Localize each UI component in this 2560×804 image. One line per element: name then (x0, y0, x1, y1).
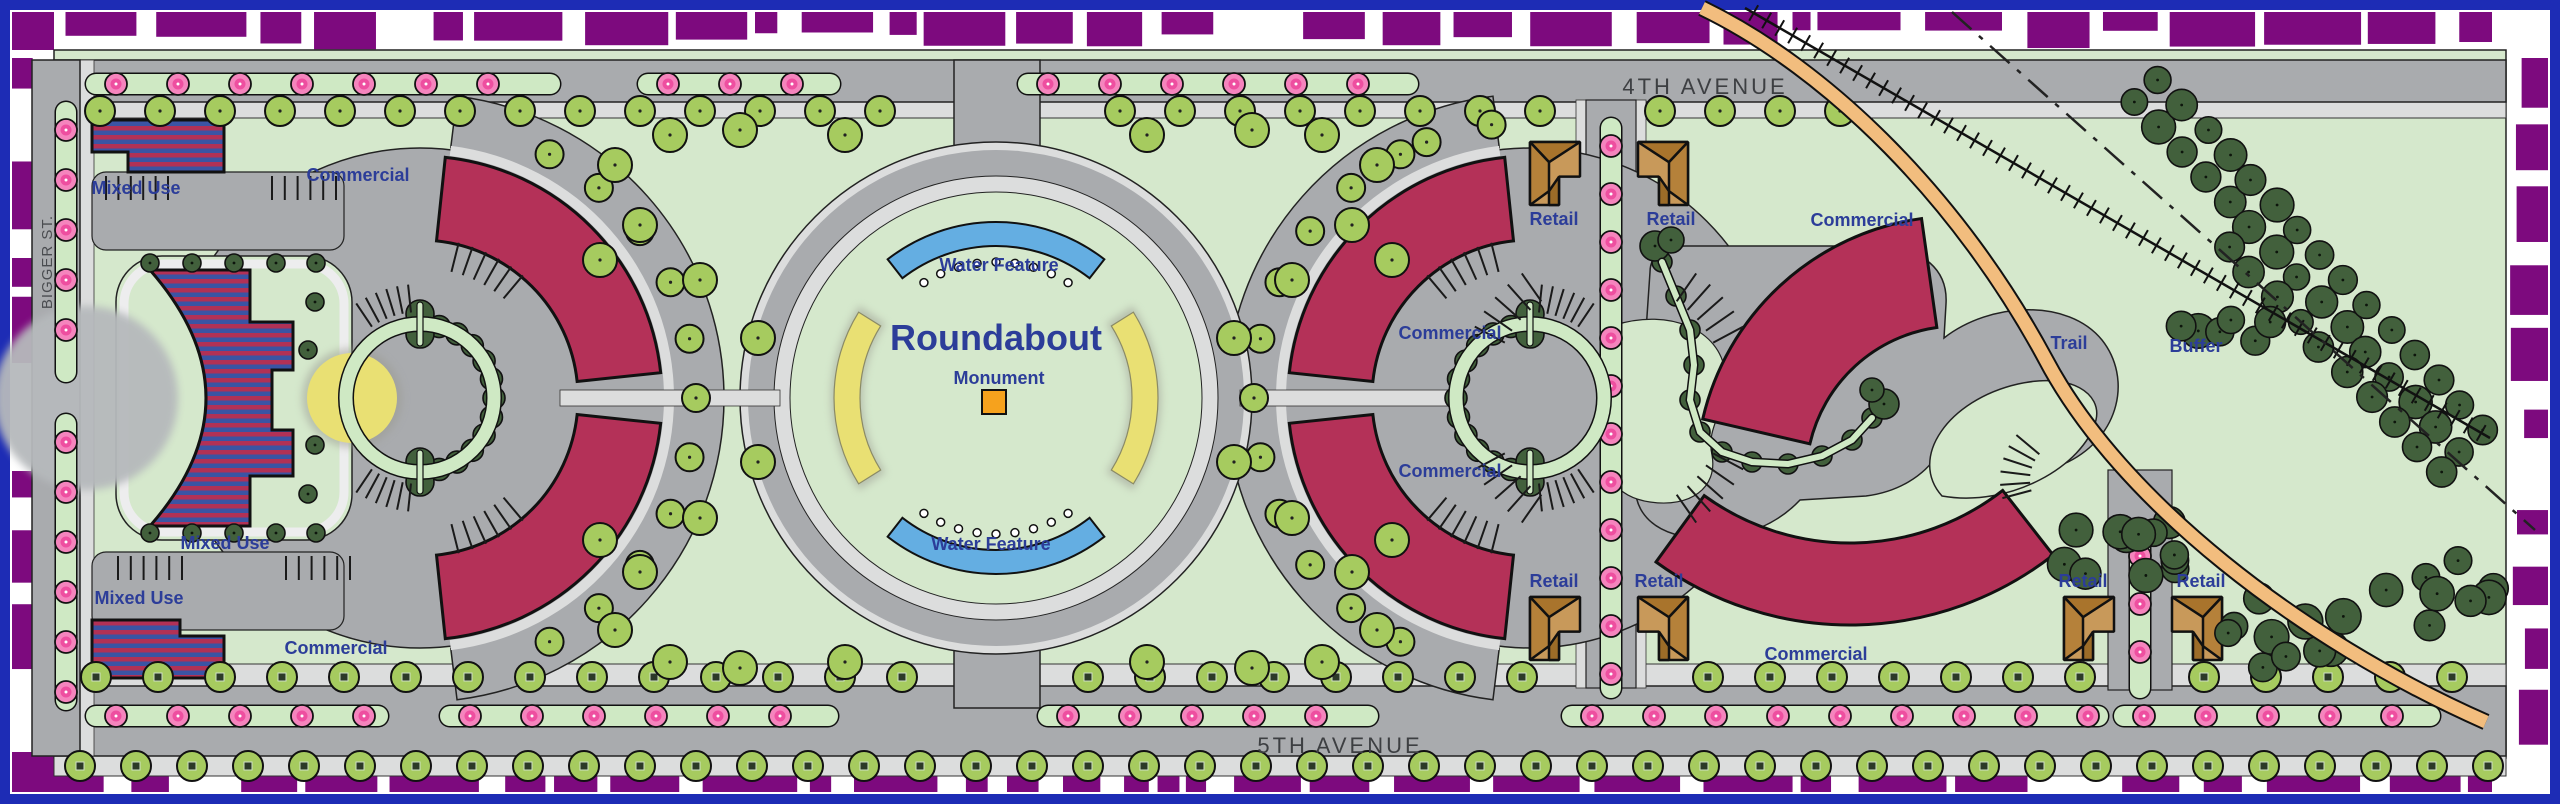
tree-center (65, 129, 68, 132)
tree-center (2457, 559, 2460, 562)
tree-center (1610, 433, 1613, 436)
tree-grate-icon (1308, 762, 1316, 770)
tree-center (425, 83, 428, 86)
tree-grate-icon (692, 762, 700, 770)
tree-center (668, 133, 671, 136)
tree-center (2248, 226, 2251, 229)
tree-grate-icon (1890, 673, 1898, 681)
site-plan-drawing: 4TH AVENUE 5TH AVENUE BIGGER ST. Roundab… (0, 0, 2560, 804)
tree-center (2254, 339, 2257, 342)
tree-center (2346, 371, 2349, 374)
tree-center (1118, 109, 1121, 112)
tree-grate-icon (712, 673, 720, 681)
tree-center (1320, 133, 1323, 136)
tree-center (878, 109, 881, 112)
tree-center (2173, 554, 2176, 557)
tree-center (2329, 715, 2332, 718)
tree-center (1350, 607, 1353, 610)
tree-center (1067, 715, 1070, 718)
tree-center (1259, 337, 1262, 340)
retail-label: Retail (1529, 571, 1578, 591)
border-block (1530, 12, 1612, 46)
border-block (890, 12, 917, 35)
tree-center (239, 83, 242, 86)
tree-center (315, 532, 318, 535)
tree-center (65, 329, 68, 332)
tree-center (1478, 109, 1481, 112)
tree-center (2139, 651, 2142, 654)
tree-center (597, 607, 600, 610)
tree-grate-icon (2324, 673, 2332, 681)
tree-grate-icon (300, 762, 308, 770)
tree-grate-icon (2036, 762, 2044, 770)
tree-center (698, 278, 701, 281)
tree-center (1250, 128, 1253, 131)
tree-center (2229, 319, 2232, 322)
tree-center (669, 512, 672, 515)
border-block (156, 12, 246, 37)
tree-grate-icon (132, 762, 140, 770)
tree-grate-icon (76, 762, 84, 770)
tree-center (2364, 351, 2367, 354)
tree-grate-icon (1868, 762, 1876, 770)
tree-center (1350, 570, 1353, 573)
tree-center (2413, 354, 2416, 357)
tree-center (191, 262, 194, 265)
tree-center (1610, 193, 1613, 196)
border-block (1383, 12, 1441, 45)
tree-center (2390, 329, 2393, 332)
tree-center (2075, 529, 2078, 532)
tree-center (2416, 446, 2419, 449)
tree-grate-icon (2316, 762, 2324, 770)
bigger-street-label: BIGGER ST. (39, 215, 56, 309)
border-block (314, 12, 376, 49)
tree-center (613, 163, 616, 166)
site-plan-page: 4TH AVENUE 5TH AVENUE BIGGER ST. Roundab… (0, 0, 2560, 804)
border-block (2511, 328, 2548, 381)
mixed-use-label: Mixed Use (180, 533, 269, 553)
tree-grate-icon (898, 673, 906, 681)
tree-center (669, 281, 672, 284)
tree-grate-icon (804, 762, 812, 770)
tree-grate-icon (580, 762, 588, 770)
tree-center (593, 715, 596, 718)
tree-center (363, 83, 366, 86)
tree-grate-icon (1028, 762, 1036, 770)
tree-center (2267, 715, 2270, 718)
border-block (676, 12, 747, 40)
tree-center (2438, 379, 2441, 382)
tree-center (1171, 83, 1174, 86)
tree-grate-icon (2372, 762, 2380, 770)
border-block (2103, 12, 2158, 31)
tree-center (729, 83, 732, 86)
tree-grate-icon (1766, 673, 1774, 681)
tree-center (638, 223, 641, 226)
tree-center (738, 128, 741, 131)
tree-center (1290, 278, 1293, 281)
court-bench (417, 450, 423, 494)
tree-center (2261, 666, 2264, 669)
tree-center (2346, 326, 2349, 329)
tree-center (1259, 456, 1262, 459)
tree-grate-icon (2204, 762, 2212, 770)
border-block (2510, 265, 2548, 315)
tree-grate-icon (468, 762, 476, 770)
tree-center (2318, 254, 2321, 257)
tree-center (1538, 109, 1541, 112)
tree-center (1610, 529, 1613, 532)
border-block (2525, 628, 2548, 668)
border-block (755, 12, 777, 33)
tree-center (2157, 126, 2160, 129)
tree-center (2180, 325, 2183, 328)
tree-grate-icon (1700, 762, 1708, 770)
tree-center (1399, 153, 1402, 156)
tree-center (218, 109, 221, 112)
tree-center (177, 715, 180, 718)
tree-grate-icon (412, 762, 420, 770)
border-block (66, 12, 137, 36)
tree-center (2425, 576, 2428, 579)
tree-center (1610, 241, 1613, 244)
tree-center (2228, 246, 2231, 249)
tree-grate-icon (464, 673, 472, 681)
tree-center (398, 109, 401, 112)
tree-center (2487, 596, 2490, 599)
border-block (2368, 12, 2436, 44)
monument-marker (982, 390, 1006, 414)
water-feature-label-south: Water Feature (931, 534, 1050, 554)
tree-grate-icon (774, 673, 782, 681)
tree-center (2276, 296, 2279, 299)
tree-center (2218, 330, 2221, 333)
commercial-label: Commercial (306, 165, 409, 185)
tree-center (2087, 715, 2090, 718)
tree-center (1610, 673, 1613, 676)
tree-center (1232, 460, 1235, 463)
tree-center (1777, 715, 1780, 718)
tree-center (1375, 628, 1378, 631)
border-block (2524, 410, 2548, 438)
fountain-jet-icon (1047, 518, 1055, 526)
tree-grate-icon (860, 762, 868, 770)
tree-center (1233, 83, 1236, 86)
tree-center (239, 715, 242, 718)
tree-center (278, 109, 281, 112)
tree-grate-icon (340, 673, 348, 681)
tree-center (843, 133, 846, 136)
tree-grate-icon (1196, 762, 1204, 770)
tree-grate-icon (2428, 762, 2436, 770)
tree-grate-icon (1394, 673, 1402, 681)
tree-center (307, 349, 310, 352)
tree-grate-icon (1084, 673, 1092, 681)
tree-center (548, 640, 551, 643)
tree-center (738, 666, 741, 669)
tree-center (1191, 715, 1194, 718)
tree-grate-icon (2076, 673, 2084, 681)
tree-center (1129, 715, 1132, 718)
buffer-label: Buffer (2170, 336, 2223, 356)
tree-center (65, 441, 68, 444)
tree-center (1350, 186, 1353, 189)
tree-center (698, 516, 701, 519)
tree-center (2227, 632, 2230, 635)
tree-center (1610, 289, 1613, 292)
tree-center (638, 109, 641, 112)
tree-center (1591, 715, 1594, 718)
court-bench (417, 302, 423, 346)
border-block (1087, 12, 1142, 46)
tree-center (2137, 533, 2140, 536)
tree-center (688, 337, 691, 340)
tree-center (1109, 83, 1112, 86)
tree-center (149, 532, 152, 535)
tree-center (2207, 129, 2210, 132)
tree-center (1839, 715, 1842, 718)
tree-center (2428, 624, 2431, 627)
water-feature-label-north: Water Feature (939, 255, 1058, 275)
tree-center (2025, 715, 2028, 718)
tree-center (233, 262, 236, 265)
tree-center (2144, 574, 2147, 577)
tree-grate-icon (2484, 762, 2492, 770)
tree-grate-icon (1208, 673, 1216, 681)
tree-center (2341, 279, 2344, 282)
tree-center (2393, 421, 2396, 424)
border-block (12, 58, 33, 89)
tree-center (843, 660, 846, 663)
tree-grate-icon (1084, 762, 1092, 770)
tree-grate-icon (1364, 762, 1372, 770)
tree-center (1295, 83, 1298, 86)
tree-center (2414, 401, 2417, 404)
tree-grate-icon (916, 762, 924, 770)
tree-grate-icon (524, 762, 532, 770)
tree-center (338, 109, 341, 112)
fountain-jet-icon (920, 509, 928, 517)
tree-center (2296, 229, 2299, 232)
tree-center (301, 83, 304, 86)
tree-center (1901, 715, 1904, 718)
mixed-use-label: Mixed Use (94, 588, 183, 608)
border-block (924, 12, 1006, 46)
border-block (1454, 12, 1512, 37)
tree-center (2229, 154, 2232, 157)
tree-grate-icon (154, 673, 162, 681)
tree-center (2229, 201, 2232, 204)
tree-center (2317, 346, 2320, 349)
retail-label: Retail (1529, 209, 1578, 229)
tree-center (2063, 563, 2066, 566)
tree-grate-icon (1812, 762, 1820, 770)
tree-center (115, 715, 118, 718)
tree-center (307, 493, 310, 496)
border-block (2516, 124, 2548, 170)
tree-center (818, 109, 821, 112)
tree-center (2320, 301, 2323, 304)
tree-center (717, 715, 720, 718)
tree-center (1375, 163, 1378, 166)
tree-grate-icon (636, 762, 644, 770)
tree-center (98, 109, 101, 112)
tree-center (531, 715, 534, 718)
tree-center (149, 262, 152, 265)
tree-center (1145, 133, 1148, 136)
tree-center (1250, 666, 1253, 669)
border-block (434, 12, 463, 40)
border-block (474, 12, 562, 41)
tree-center (1298, 109, 1301, 112)
tree-center (694, 396, 697, 399)
tree-center (1253, 715, 1256, 718)
tree-center (458, 109, 461, 112)
tree-center (2197, 330, 2200, 333)
border-block (802, 12, 873, 32)
tree-grate-icon (2448, 673, 2456, 681)
tree-grate-icon (356, 762, 364, 770)
tree-grate-icon (1420, 762, 1428, 770)
tree-center (2269, 321, 2272, 324)
tree-center (1871, 389, 1874, 392)
tree-center (1320, 660, 1323, 663)
border-block (2170, 12, 2255, 47)
tree-center (698, 109, 701, 112)
tree-center (2249, 179, 2252, 182)
tree-grate-icon (526, 673, 534, 681)
tree-center (1309, 230, 1312, 233)
tree-center (275, 532, 278, 535)
tree-center (667, 83, 670, 86)
tree-grate-icon (748, 762, 756, 770)
tree-center (65, 691, 68, 694)
border-block (1817, 12, 1900, 30)
tree-center (363, 715, 366, 718)
border-block (2513, 567, 2548, 605)
commercial-label: Commercial (1398, 461, 1501, 481)
border-block (2517, 510, 2548, 534)
border-block (12, 752, 54, 792)
tree-grate-icon (2260, 762, 2268, 770)
tree-center (1425, 140, 1428, 143)
tree-center (638, 570, 641, 573)
border-block (2459, 12, 2492, 42)
tree-center (1290, 516, 1293, 519)
tree-center (1883, 403, 1886, 406)
tree-center (65, 591, 68, 594)
fifth-avenue-label: 5TH AVENUE (1257, 733, 1422, 758)
tree-center (2318, 649, 2321, 652)
tree-grate-icon (1270, 673, 1278, 681)
tree-center (65, 179, 68, 182)
tree-center (314, 444, 317, 447)
gravel-plaza (0, 306, 178, 490)
tree-center (758, 109, 761, 112)
border-block (1162, 12, 1214, 34)
tree-grate-icon (2092, 762, 2100, 770)
tree-center (1178, 109, 1181, 112)
retail-label: Retail (1634, 571, 1683, 591)
tree-grate-icon (1952, 673, 1960, 681)
tree-center (301, 715, 304, 718)
tree-grate-icon (1588, 762, 1596, 770)
tree-center (1390, 258, 1393, 261)
tree-center (756, 460, 759, 463)
tree-center (668, 660, 671, 663)
tree-grate-icon (1456, 673, 1464, 681)
tree-center (2285, 655, 2288, 658)
tree-center (1418, 109, 1421, 112)
fountain-jet-icon (1029, 525, 1037, 533)
tree-center (518, 109, 521, 112)
tree-grate-icon (244, 762, 252, 770)
tree-center (1715, 715, 1718, 718)
tree-center (1658, 109, 1661, 112)
tree-center (65, 491, 68, 494)
tree-center (275, 262, 278, 265)
tree-center (65, 229, 68, 232)
fountain-jet-icon (1064, 509, 1072, 517)
tree-center (655, 715, 658, 718)
tree-grate-icon (1252, 762, 1260, 770)
tree-grate-icon (2200, 673, 2208, 681)
monument-label: Monument (954, 368, 1045, 388)
tree-grate-icon (1704, 673, 1712, 681)
tree-grate-icon (1924, 762, 1932, 770)
border-block (2264, 12, 2361, 45)
tree-center (1232, 336, 1235, 339)
tree-grate-icon (1644, 762, 1652, 770)
tree-grate-icon (216, 673, 224, 681)
tree-center (2276, 204, 2279, 207)
tree-center (688, 456, 691, 459)
tree-center (315, 262, 318, 265)
trail-label: Trail (2050, 333, 2087, 353)
fountain-jet-icon (937, 518, 945, 526)
tree-center (177, 83, 180, 86)
border-block (2522, 58, 2548, 108)
tree-center (2391, 715, 2394, 718)
tree-center (1238, 109, 1241, 112)
fourth-avenue-label: 4TH AVENUE (1622, 74, 1787, 99)
tree-grate-icon (1980, 762, 1988, 770)
border-block (1016, 12, 1073, 44)
tree-grate-icon (278, 673, 286, 681)
tree-center (756, 336, 759, 339)
tree-center (2385, 589, 2388, 592)
tree-center (1490, 123, 1493, 126)
tree-center (1047, 83, 1050, 86)
border-block (260, 12, 301, 43)
border-block (2027, 12, 2089, 48)
tree-grate-icon (92, 673, 100, 681)
tree-center (2139, 555, 2142, 558)
tree-grate-icon (972, 762, 980, 770)
tree-center (2156, 79, 2159, 82)
tree-center (1778, 109, 1781, 112)
tree-grate-icon (1532, 762, 1540, 770)
commercial-label: Commercial (1810, 210, 1913, 230)
tree-center (115, 83, 118, 86)
border-block (1793, 12, 1811, 30)
commercial-label: Commercial (1398, 323, 1501, 343)
tree-center (598, 258, 601, 261)
tree-center (779, 715, 782, 718)
tree-grate-icon (2148, 762, 2156, 770)
border-block (2519, 690, 2548, 745)
